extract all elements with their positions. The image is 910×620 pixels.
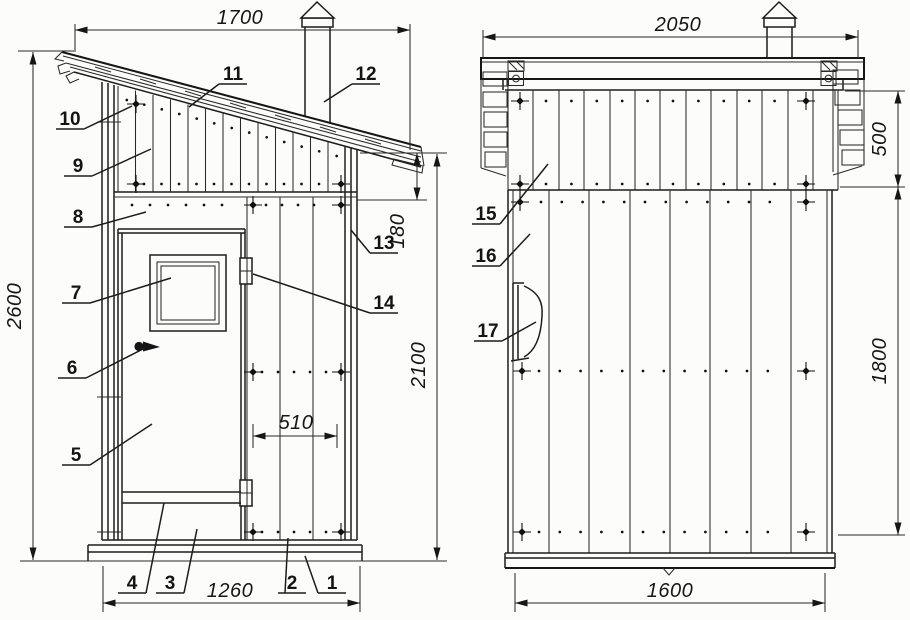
dim-2050-label: 2050 <box>654 14 702 36</box>
callout-13: 13 <box>351 230 398 254</box>
dim-2600-label: 2600 <box>4 283 26 331</box>
callout-16-label: 16 <box>475 246 496 267</box>
chimney-pipe <box>767 27 792 58</box>
callout-16: 16 <box>472 234 530 267</box>
handle-grip <box>143 342 160 352</box>
callout-17: 17 <box>474 321 536 342</box>
callout-8: 8 <box>64 207 146 228</box>
dim-500-label: 500 <box>869 122 891 157</box>
side-dimensions: 2050 500 1800 1600 <box>483 14 905 612</box>
dim-1700-label: 1700 <box>217 7 264 29</box>
front-view: 1700 2600 2100 180 510 <box>4 2 447 612</box>
dim-1260: 1260 <box>103 566 360 612</box>
chimney-cap-cone <box>763 2 796 18</box>
chimney-pipe <box>305 27 330 123</box>
callout-12-label: 12 <box>355 64 376 85</box>
dim-1800-label: 1800 <box>869 338 891 385</box>
dim-510-label: 510 <box>279 412 314 434</box>
vent-handle-shape <box>511 283 542 361</box>
board-end <box>835 90 860 105</box>
callout-10-label: 10 <box>59 109 80 130</box>
door-handle <box>134 342 160 352</box>
side-chimney <box>763 2 796 58</box>
side-roof <box>481 58 864 178</box>
side-base <box>505 553 835 575</box>
front-door <box>118 229 252 540</box>
callout-15-label: 15 <box>475 204 497 225</box>
callout-2: 2 <box>278 538 306 594</box>
callout-15: 15 <box>472 164 548 225</box>
door-hinges <box>240 258 252 506</box>
chimney-cap-cone <box>301 2 334 18</box>
callout-4-leader <box>118 503 164 593</box>
board-end <box>840 130 864 145</box>
door-bottom-rail <box>122 492 241 503</box>
gable-plank-joints <box>118 86 345 192</box>
callout-4: 4 <box>118 503 164 594</box>
gable-band-joints <box>508 90 838 190</box>
callout-9-label: 9 <box>73 156 84 177</box>
callout-1: 1 <box>305 556 346 594</box>
callout-7-label: 7 <box>71 283 82 304</box>
front-chimney <box>301 2 334 123</box>
front-right-wall-planks <box>132 197 334 540</box>
callout-13-label: 13 <box>373 233 394 254</box>
dim-510: 510 <box>253 412 337 448</box>
dim-1260-label: 1260 <box>207 580 254 602</box>
door-window-inner-frame <box>157 262 219 324</box>
callout-12: 12 <box>324 64 380 102</box>
door-head <box>118 229 245 233</box>
chimney-cap-flange <box>302 18 333 27</box>
side-wall-planks <box>508 190 832 553</box>
board-end <box>838 110 862 125</box>
side-vent-handle <box>511 283 542 361</box>
board-end <box>485 152 506 167</box>
callout-2-label: 2 <box>287 573 298 594</box>
board-end <box>484 112 507 127</box>
callout-4-label: 4 <box>127 573 138 594</box>
callout-10: 10 <box>56 106 132 130</box>
dim-1800: 1800 <box>838 187 905 535</box>
roof-fascia-band <box>481 58 864 79</box>
dim-2050: 2050 <box>483 14 858 58</box>
front-fastener-crosses <box>127 95 350 541</box>
board-end <box>842 150 864 165</box>
dim-1600-label: 1600 <box>647 580 694 602</box>
callout-1-label: 1 <box>327 573 338 594</box>
drain-notch <box>663 568 675 575</box>
callout-5-label: 5 <box>71 445 82 466</box>
board-end <box>484 132 507 147</box>
side-view: 2050 500 1800 1600 15 16 17 <box>472 2 905 612</box>
callout-17-label: 17 <box>477 321 498 342</box>
callout-11-label: 11 <box>223 64 244 85</box>
wall-plank-joints <box>549 190 791 553</box>
chimney-cap-flange <box>764 18 795 27</box>
sill-and-skids <box>88 545 362 561</box>
callout-3-label: 3 <box>165 573 176 594</box>
callout-1-leader <box>305 556 346 593</box>
dim-1600: 1600 <box>515 573 825 612</box>
callout-7: 7 <box>62 278 171 304</box>
front-gable-planks <box>118 86 345 192</box>
side-gable-band-planks <box>508 90 838 202</box>
callout-5: 5 <box>62 424 152 466</box>
callout-12-leader <box>324 84 380 102</box>
dim-2100-label: 2100 <box>408 342 430 390</box>
board-end <box>483 92 507 107</box>
callout-8-label: 8 <box>73 207 84 228</box>
door-window-pane <box>161 266 215 320</box>
side-fastener-crosses <box>511 92 815 541</box>
front-base <box>20 540 447 561</box>
roof-soffit-band <box>503 79 843 90</box>
sill-band <box>505 553 835 568</box>
callout-14: 14 <box>253 274 398 314</box>
callout-11: 11 <box>189 64 247 107</box>
callout-6-label: 6 <box>67 358 78 379</box>
left-corner-trim <box>102 82 114 540</box>
wall-plank-joints <box>247 197 313 540</box>
callout-14-label: 14 <box>373 293 395 314</box>
outhouse-two-view-drawing: 1700 2600 2100 180 510 <box>0 0 910 620</box>
construction-drawing-sheet: 1700 2600 2100 180 510 <box>0 0 910 620</box>
